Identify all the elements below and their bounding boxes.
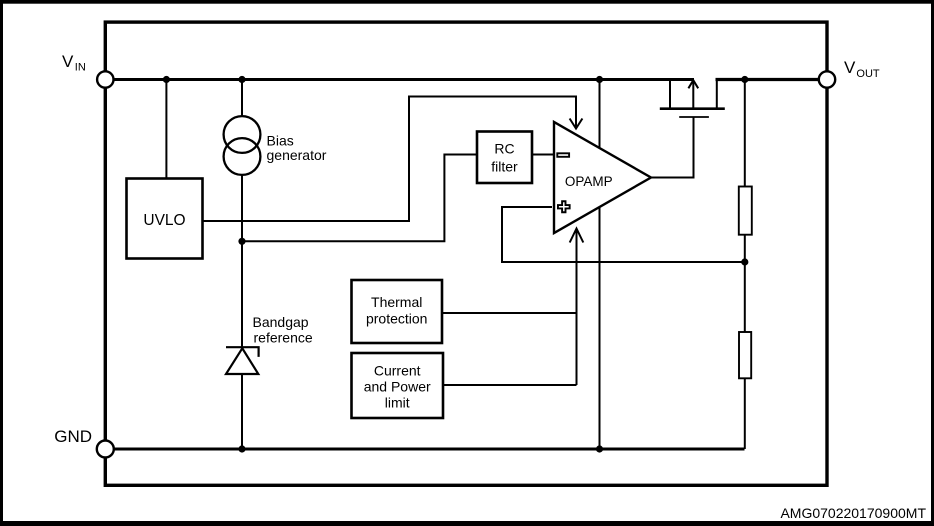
svg-text:IN: IN [75, 61, 86, 73]
svg-text:Current: Current [374, 363, 421, 379]
svg-text:OPAMP: OPAMP [565, 174, 613, 189]
svg-text:RC: RC [494, 140, 514, 156]
svg-text:generator: generator [267, 147, 327, 163]
svg-text:reference: reference [254, 329, 313, 345]
svg-text:protection: protection [366, 311, 427, 327]
svg-text:OUT: OUT [856, 68, 880, 80]
svg-text:AMG070220170900MT: AMG070220170900MT [780, 505, 926, 521]
svg-text:Bandgap: Bandgap [253, 314, 309, 330]
svg-text:Bias: Bias [267, 132, 294, 148]
svg-text:limit: limit [385, 395, 410, 411]
svg-text:V: V [62, 52, 74, 71]
svg-text:GND: GND [54, 427, 92, 446]
svg-text:Thermal: Thermal [371, 294, 422, 310]
svg-text:filter: filter [491, 158, 518, 174]
svg-text:UVLO: UVLO [143, 212, 185, 229]
svg-text:V: V [844, 58, 856, 77]
svg-text:and Power: and Power [364, 379, 431, 395]
